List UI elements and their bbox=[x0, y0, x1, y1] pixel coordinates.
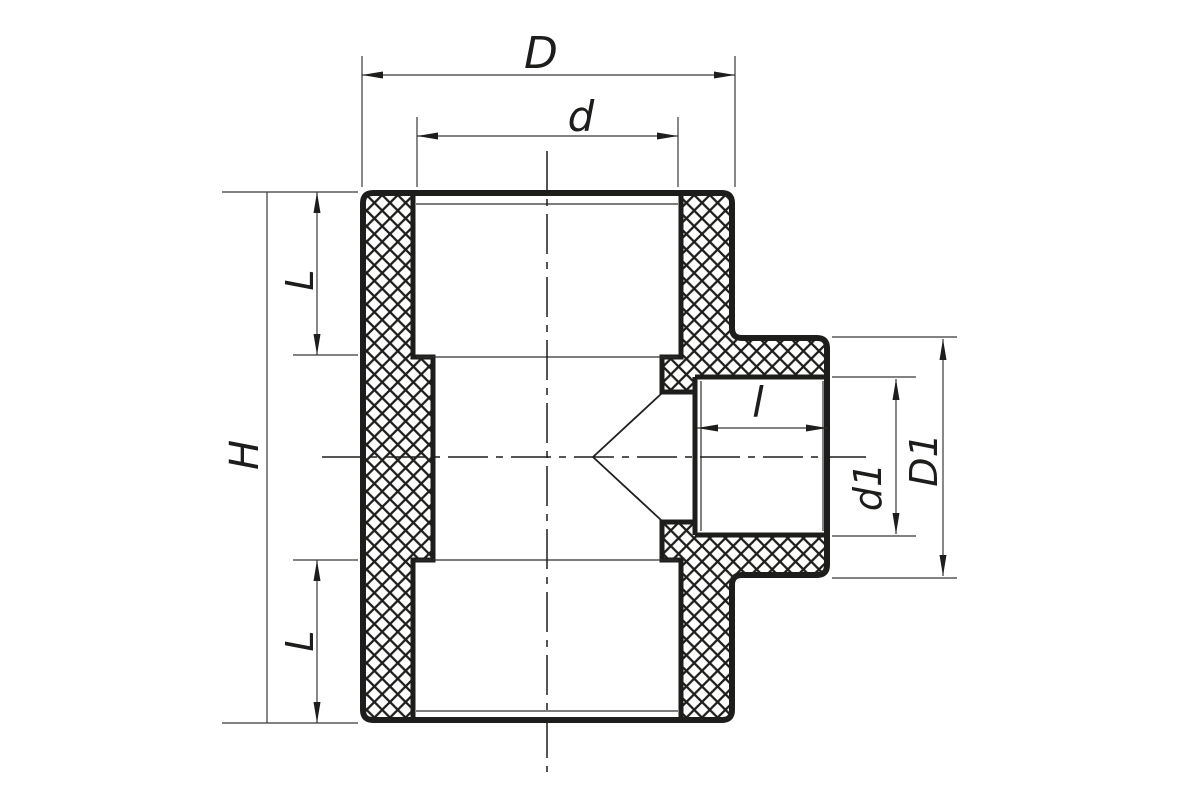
technical-drawing-canvas: D d H L L l bbox=[0, 0, 1200, 800]
dim-label-L-top: L bbox=[278, 269, 322, 290]
dim-label-d: d bbox=[568, 92, 595, 141]
arrowhead-icon bbox=[657, 133, 678, 140]
arrowhead-icon bbox=[940, 555, 947, 576]
arrowhead-icon bbox=[806, 425, 827, 432]
dim-label-D1: D1 bbox=[902, 433, 946, 486]
dim-label-D: D bbox=[524, 28, 558, 79]
dim-label-d1: d1 bbox=[846, 463, 890, 511]
dimension-D: D bbox=[362, 28, 735, 187]
dim-label-l: l bbox=[752, 378, 764, 427]
arrowhead-icon bbox=[417, 133, 438, 140]
arrowhead-icon bbox=[940, 339, 947, 360]
arrowhead-icon bbox=[314, 192, 321, 213]
dimension-l: l bbox=[697, 378, 827, 432]
tee-fitting-section-drawing: D d H L L l bbox=[0, 0, 1200, 800]
arrowhead-icon bbox=[893, 513, 900, 534]
arrowhead-icon bbox=[893, 379, 900, 400]
arrowhead-icon bbox=[314, 702, 321, 723]
dim-label-H: H bbox=[222, 440, 268, 470]
arrowhead-icon bbox=[314, 560, 321, 581]
arrowhead-icon bbox=[362, 72, 383, 79]
dim-label-L-bottom: L bbox=[278, 630, 322, 651]
arrowhead-icon bbox=[714, 72, 735, 79]
dimension-L-top: L bbox=[278, 192, 358, 355]
dimension-L-bottom: L bbox=[278, 560, 358, 723]
arrowhead-icon bbox=[314, 334, 321, 355]
arrowhead-icon bbox=[697, 425, 718, 432]
